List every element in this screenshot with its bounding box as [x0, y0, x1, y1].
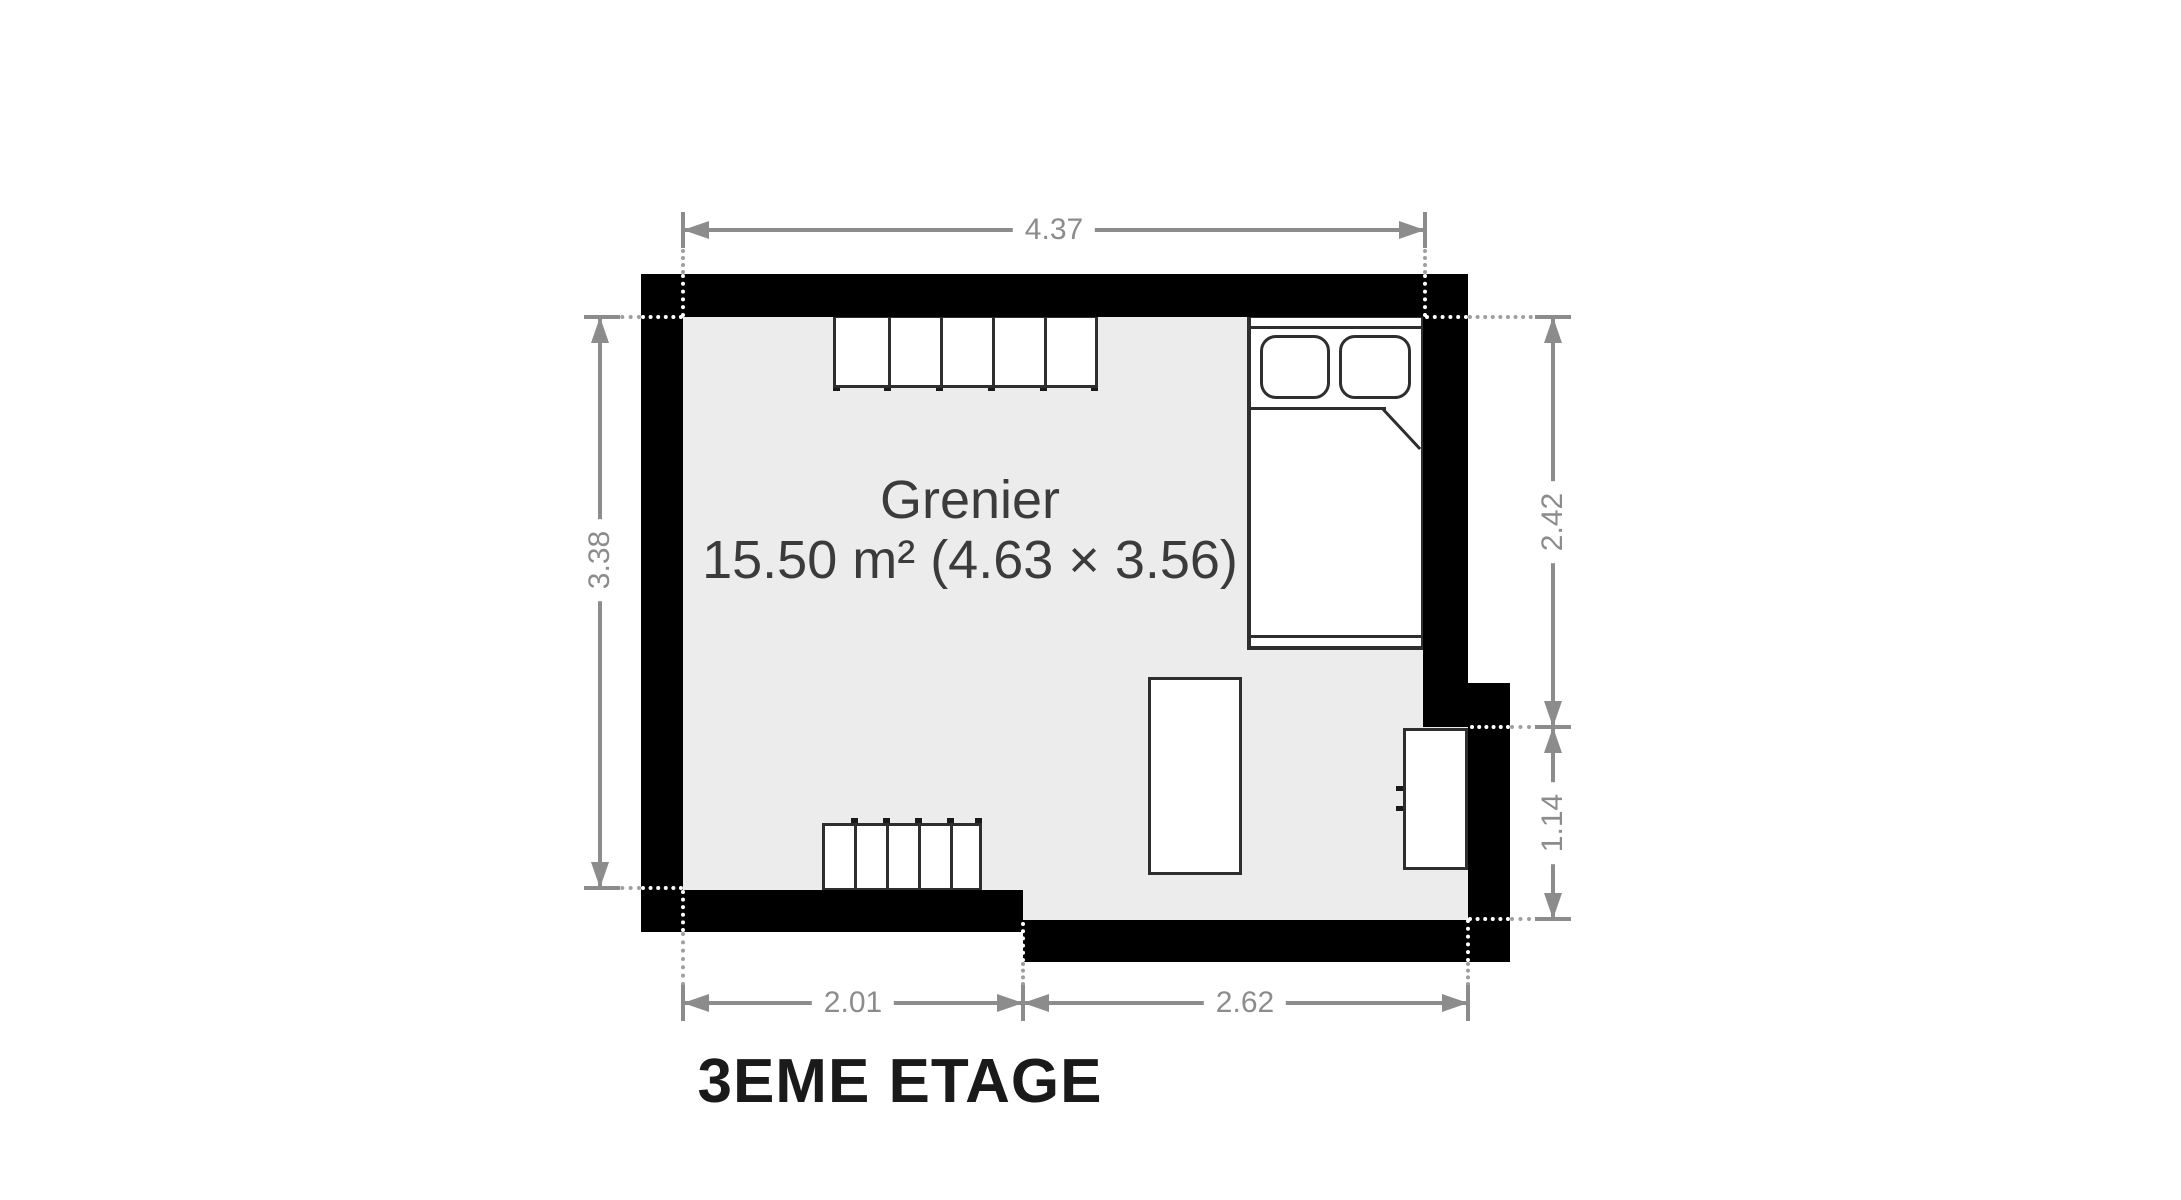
radiator-divider: [854, 826, 857, 888]
wall-right-upper: [1423, 274, 1468, 727]
extension-line: [1468, 917, 1510, 921]
desk: [1403, 728, 1468, 870]
dim-right-lower-label: 1.14: [1534, 782, 1572, 864]
dim-tick: [1423, 212, 1427, 248]
room-name: Grenier: [700, 470, 1240, 530]
wardrobe-divider: [888, 318, 891, 385]
dim-arrowhead: [591, 317, 609, 343]
bed-foot-line: [1251, 635, 1421, 638]
bed-pillow: [1260, 335, 1330, 399]
extension-line: [681, 890, 685, 932]
extension-line: [1470, 725, 1510, 729]
room-label: Grenier 15.50 m² (4.63 × 3.56): [700, 470, 1240, 590]
dim-left-label: 3.38: [581, 519, 619, 601]
dim-arrowhead: [1442, 994, 1468, 1012]
extension-line: [641, 315, 683, 319]
dim-arrowhead: [1544, 893, 1562, 919]
wall-top: [641, 274, 1468, 317]
bed-blanket-fold: [1381, 407, 1421, 450]
dim-bottom-left-label: 2.01: [812, 984, 894, 1022]
radiator-divider: [886, 826, 889, 888]
dim-tick: [681, 985, 685, 1021]
dim-tick: [1466, 985, 1470, 1021]
extension-line: [681, 274, 685, 317]
bed-headboard-line: [1251, 326, 1421, 329]
radiator: [822, 823, 982, 891]
dim-arrowhead: [591, 862, 609, 888]
dim-bottom-right-label: 2.62: [1204, 984, 1286, 1022]
table: [1148, 677, 1242, 875]
floor-plan-canvas: Grenier 15.50 m² (4.63 × 3.56) 4.37 3.38…: [0, 0, 2181, 1200]
dim-right-upper-label: 2.42: [1534, 481, 1572, 563]
extension-line: [1425, 315, 1468, 319]
dim-tick: [584, 315, 620, 319]
dim-arrowhead: [683, 221, 709, 239]
dim-arrowhead: [683, 994, 709, 1012]
extension-line: [1021, 962, 1025, 986]
dim-tick: [1535, 315, 1571, 319]
radiator-divider: [918, 826, 921, 888]
wall-bottom-right: [1023, 920, 1510, 962]
bed: [1247, 314, 1425, 650]
dim-tick: [1021, 985, 1025, 1021]
wardrobe-divider: [940, 318, 943, 385]
bed-pillow: [1339, 335, 1411, 399]
dim-arrowhead: [1023, 994, 1049, 1012]
room-area: 15.50 m² (4.63 × 3.56): [700, 530, 1240, 590]
floor-title: 3EME ETAGE: [640, 1046, 1160, 1117]
dim-tick: [1535, 917, 1571, 921]
bed-blanket-line: [1251, 407, 1386, 410]
dim-arrowhead: [1399, 221, 1425, 239]
dim-arrowhead: [1544, 317, 1562, 343]
extension-line: [1423, 274, 1427, 317]
wall-left: [641, 274, 683, 932]
wall-bottom-left: [641, 890, 1023, 932]
dim-arrowhead: [997, 994, 1023, 1012]
wardrobe-divider: [992, 318, 995, 385]
wardrobe: [833, 315, 1098, 388]
extension-line: [1021, 922, 1025, 962]
dim-arrowhead: [1544, 701, 1562, 727]
extension-line: [641, 886, 683, 890]
dim-tick: [584, 886, 620, 890]
extension-line: [1466, 919, 1470, 962]
extension-line: [1466, 962, 1470, 986]
radiator-divider: [950, 826, 953, 888]
dim-left-line: [598, 317, 602, 888]
room-floor-bottom-strip: [1023, 890, 1423, 920]
wardrobe-divider: [1044, 318, 1047, 385]
dim-arrowhead: [1544, 727, 1562, 753]
dim-tick: [681, 212, 685, 248]
dim-top-label: 4.37: [1013, 211, 1095, 249]
extension-line: [681, 932, 685, 986]
